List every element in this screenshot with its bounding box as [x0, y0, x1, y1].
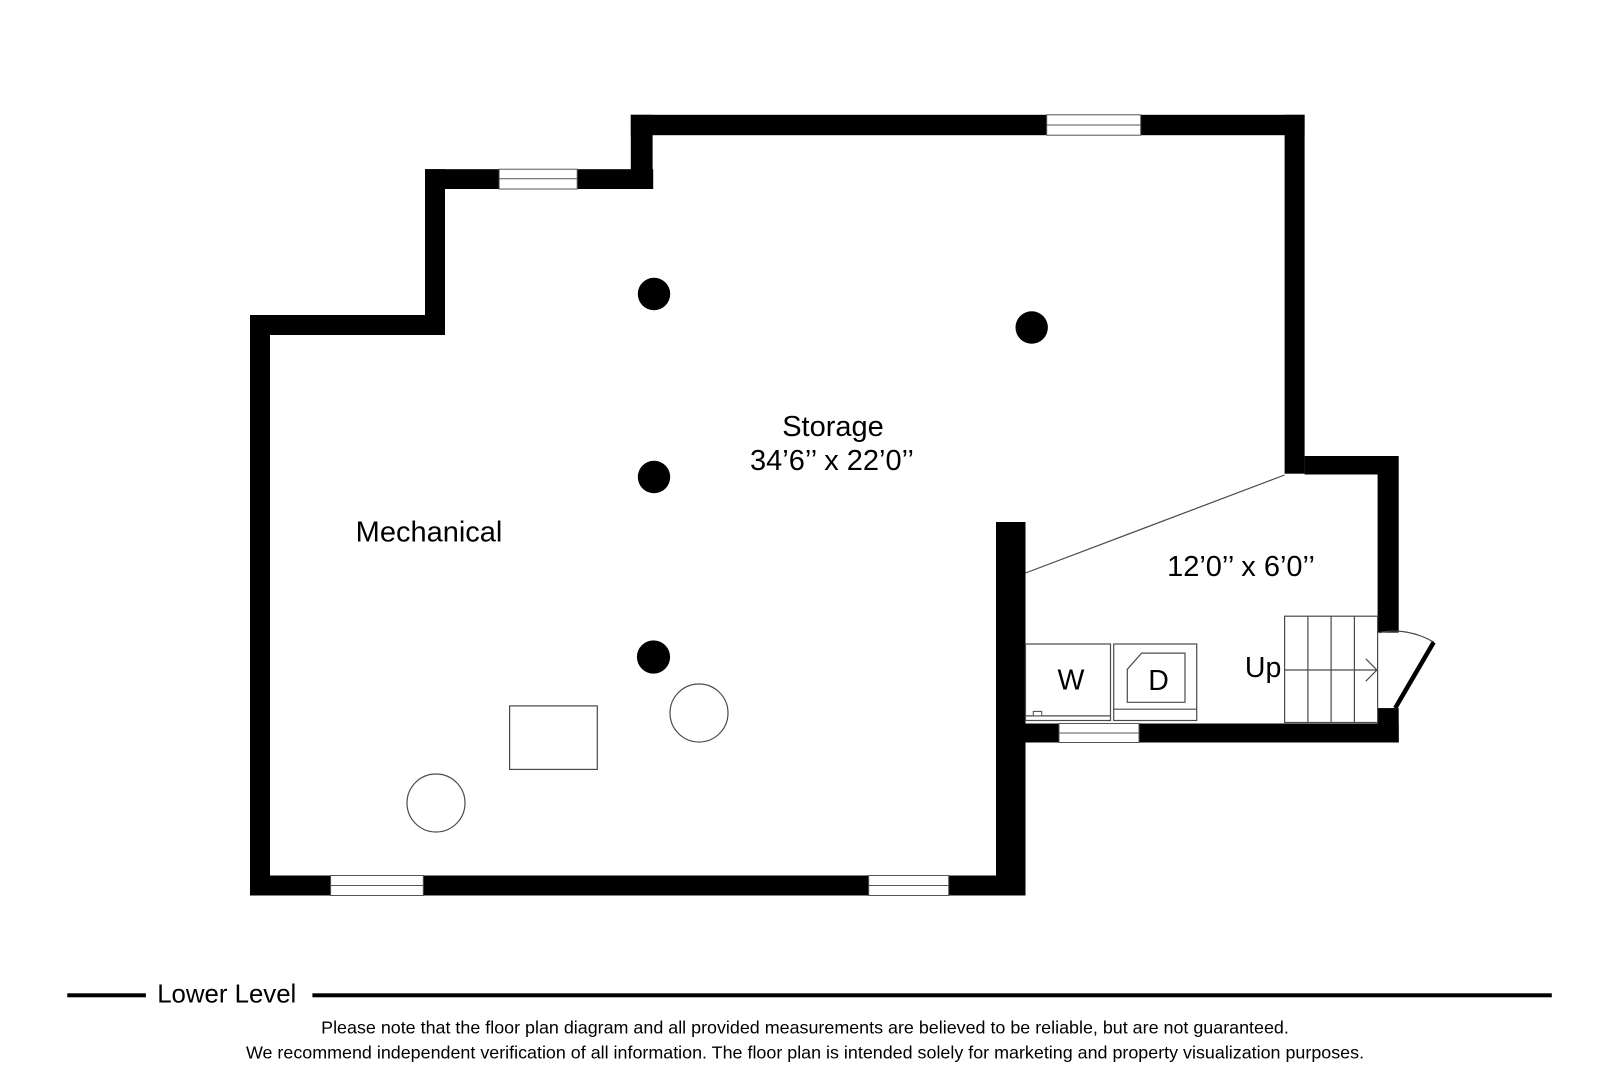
svg-text:Up: Up [1245, 652, 1281, 684]
svg-text:Mechanical: Mechanical [356, 517, 503, 549]
svg-text:Storage: Storage [782, 411, 884, 443]
svg-text:D: D [1148, 665, 1169, 697]
svg-text:12’0’’ x 6’0’’: 12’0’’ x 6’0’’ [1167, 551, 1315, 583]
svg-text:34’6’’ x 22’0’’: 34’6’’ x 22’0’’ [750, 445, 914, 477]
svg-text:Please note that the floor pla: Please note that the floor plan diagram … [321, 1018, 1289, 1038]
svg-text:Lower Level: Lower Level [157, 980, 296, 1008]
svg-text:W: W [1058, 665, 1085, 697]
svg-text:We recommend independent verif: We recommend independent verification of… [246, 1043, 1364, 1063]
